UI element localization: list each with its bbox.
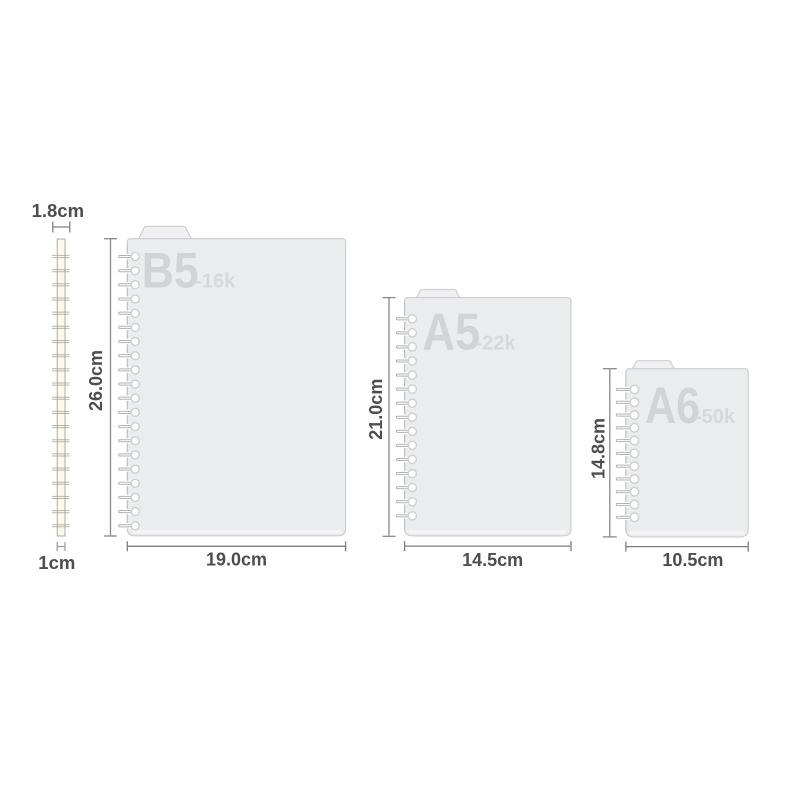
svg-text:21.0cm: 21.0cm [366, 379, 386, 440]
svg-text:14.8cm: 14.8cm [588, 418, 608, 479]
svg-text:A6: A6 [645, 377, 700, 434]
svg-text:B5: B5 [142, 243, 199, 299]
svg-text:-16k: -16k [195, 271, 236, 293]
svg-text:1.8cm: 1.8cm [32, 200, 84, 221]
svg-text:A5: A5 [422, 304, 480, 362]
svg-text:26.0cm: 26.0cm [86, 350, 106, 411]
svg-text:-22k: -22k [476, 333, 517, 355]
svg-text:1cm: 1cm [38, 552, 75, 573]
svg-text:-50k: -50k [695, 406, 736, 428]
svg-text:10.5cm: 10.5cm [662, 550, 723, 570]
svg-text:14.5cm: 14.5cm [462, 550, 523, 570]
svg-text:19.0cm: 19.0cm [206, 550, 267, 570]
